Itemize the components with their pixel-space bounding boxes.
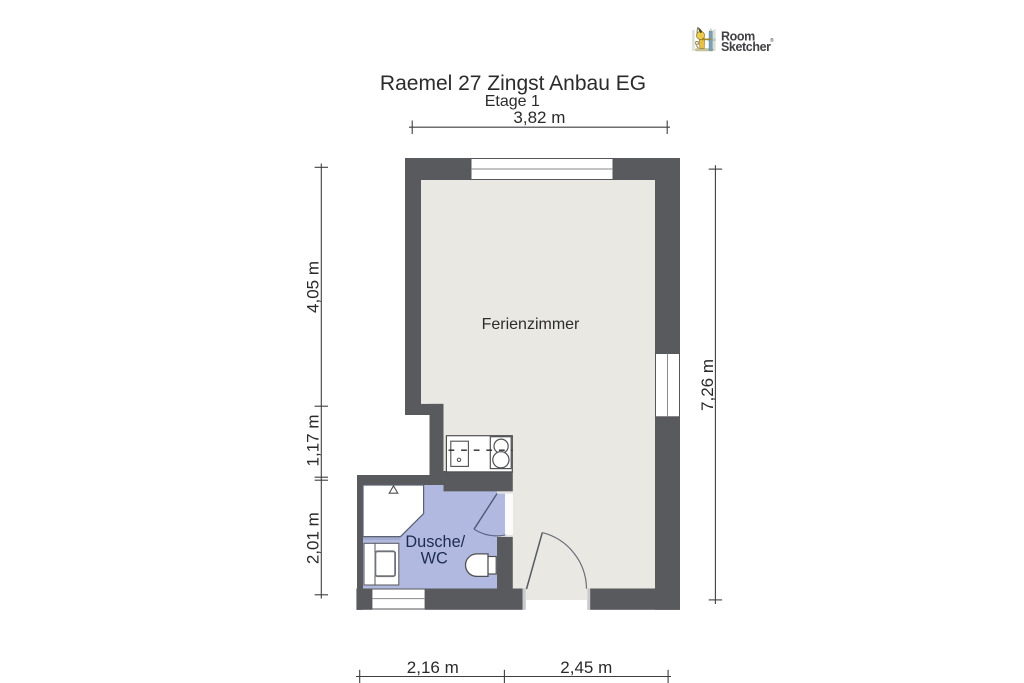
svg-text:2,01 m: 2,01 m	[304, 512, 323, 564]
svg-text:Sketcher: Sketcher	[721, 40, 771, 54]
svg-text:®: ®	[770, 37, 774, 44]
svg-text:Ferienzimmer: Ferienzimmer	[482, 316, 580, 333]
svg-text:2,16 m: 2,16 m	[407, 658, 459, 677]
svg-text:3,82 m: 3,82 m	[513, 108, 565, 127]
svg-text:2,45 m: 2,45 m	[560, 658, 612, 677]
svg-text:7,26 m: 7,26 m	[698, 359, 717, 411]
svg-text:Raemel 27 Zingst Anbau EG: Raemel 27 Zingst Anbau EG	[380, 72, 646, 95]
svg-text:Dusche/: Dusche/	[405, 533, 465, 551]
svg-text:4,05 m: 4,05 m	[304, 261, 323, 313]
svg-text:Etage 1: Etage 1	[485, 93, 540, 110]
svg-text:WC: WC	[421, 550, 448, 568]
svg-text:1,17 m: 1,17 m	[304, 415, 323, 467]
